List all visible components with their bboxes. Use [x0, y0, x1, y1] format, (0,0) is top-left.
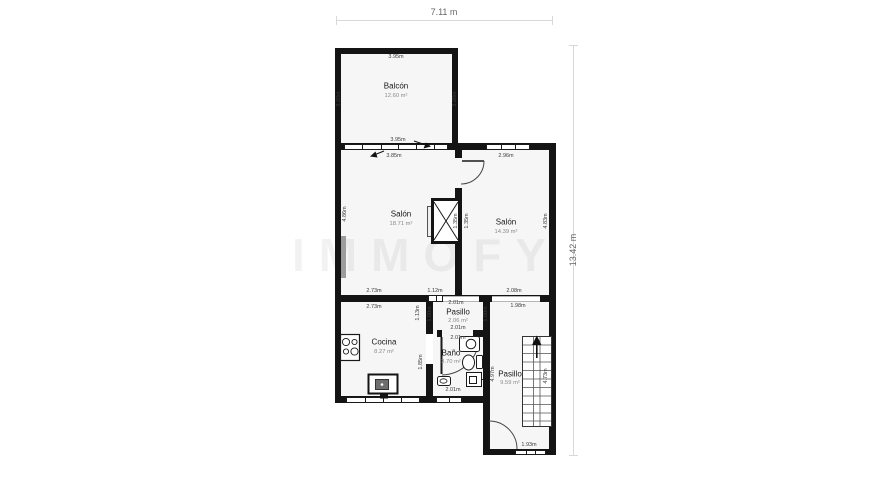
dim-balcon-top: 3.95m [388, 54, 403, 60]
window-bath [436, 397, 462, 403]
window-tick [365, 397, 366, 403]
window-tick [436, 295, 437, 302]
total-height-label: 13.42 m [568, 234, 578, 267]
window-tick [362, 144, 363, 150]
room-name-balcon: Balcón [384, 82, 408, 91]
dim-salon-left-top: 3.85m [386, 153, 401, 159]
window-tick [501, 144, 502, 150]
room-name-pasillo-mid: Pasillo [446, 308, 470, 317]
room-area-pasillo-right: 9.59 m² [500, 380, 520, 386]
height-dimension-tick-bottom [569, 455, 578, 456]
room-area-salon-left: 18.71 m² [390, 221, 413, 227]
total-width-label: 7.11 m [431, 7, 458, 17]
dim-bano-bottom: 2.01m [445, 387, 460, 393]
dim-cocina-side: 1.13m [415, 305, 421, 320]
window-balcony [344, 144, 448, 150]
dim-window-mid: 1.12m [427, 288, 442, 294]
window-kitchen [346, 397, 420, 403]
window-tick [535, 450, 536, 455]
dim-pasillo-right-bottom: 1.93m [521, 442, 536, 448]
window-tick [416, 144, 417, 150]
room-name-cocina: Cocina [372, 338, 397, 347]
dim-pasillo-mid-left: 1.00m [427, 306, 433, 321]
opening-kitchen-door [426, 334, 433, 364]
window-tick [381, 144, 382, 150]
dim-shaft-left: 1.35m [453, 213, 459, 228]
wall-bath-top-left [437, 330, 442, 337]
width-dimension-line [336, 20, 553, 21]
opening-salon-right [492, 296, 540, 302]
window-tick [383, 397, 384, 403]
room-area-cocina: 8.27 m² [374, 349, 394, 355]
window-tick [398, 144, 399, 150]
wall-salon-divider [455, 188, 462, 295]
wall-main-right [549, 143, 556, 455]
window-mid-partition [428, 295, 443, 302]
room-area-balcon: 12.60 m² [385, 93, 408, 99]
dim-bano-top: 2.01m [450, 335, 465, 341]
watermark-text: IMMOFY [292, 228, 560, 282]
dim-shaft-right: 1.35m [464, 213, 470, 228]
wall-bath-top-right [473, 330, 483, 337]
dim-balcon-left: 3.20m [336, 91, 342, 106]
room-area-bano: 3.70 m² [441, 359, 461, 365]
dim-salon-left-side: 4.86m [342, 206, 348, 221]
height-dimension-tick-top [569, 45, 578, 46]
window-salon-right [486, 144, 530, 150]
dim-balcon-right: 3.20m [452, 91, 458, 106]
dim-pasillo-right-wall: 4.73m [543, 368, 549, 383]
window-tick [449, 397, 450, 403]
window-tick [401, 397, 402, 403]
room-area-salon-right: 14.39 m² [495, 229, 518, 235]
room-area-pasillo-mid: 2.06 m² [448, 318, 468, 324]
dim-bano-left: 1.85m [418, 354, 424, 369]
width-dimension-tick-left [336, 16, 337, 25]
floorplan-canvas: 7.11 m 13.42 m IMMOFY [0, 0, 889, 500]
window-left-wall [341, 236, 346, 278]
width-dimension-tick-right [552, 16, 553, 25]
dim-pasillo-mid-top: 2.01m [448, 300, 463, 306]
room-name-bano: Baño [442, 349, 461, 358]
room-name-salon-left: Salón [391, 210, 411, 219]
dim-pasillo-mid-right: 1.00m [483, 306, 489, 321]
room-name-salon-right: Salón [496, 218, 516, 227]
dim-salon-left-bottom: 2.73m [366, 288, 381, 294]
wall-salon-divider-stub [455, 150, 462, 158]
dim-salon-right-top: 2.96m [498, 153, 513, 159]
window-tick [434, 144, 435, 150]
dim-salon-right-side: 4.83m [543, 213, 549, 228]
window-tick [515, 144, 516, 150]
dim-balcon-bottom: 3.95m [390, 137, 405, 143]
dim-pasillo-right-height: 4.97m [490, 366, 496, 381]
window-hall [515, 450, 546, 455]
dim-salon-right-bottom: 2.08m [506, 288, 521, 294]
dim-cocina-top: 2.73m [366, 304, 381, 310]
dim-pasillo-right-top: 1.98m [510, 303, 525, 309]
room-name-pasillo-right: Pasillo [498, 370, 522, 379]
window-tick [526, 450, 527, 455]
wall-hall-left [483, 302, 490, 455]
dim-pasillo-mid-bottom: 2.01m [450, 325, 465, 331]
